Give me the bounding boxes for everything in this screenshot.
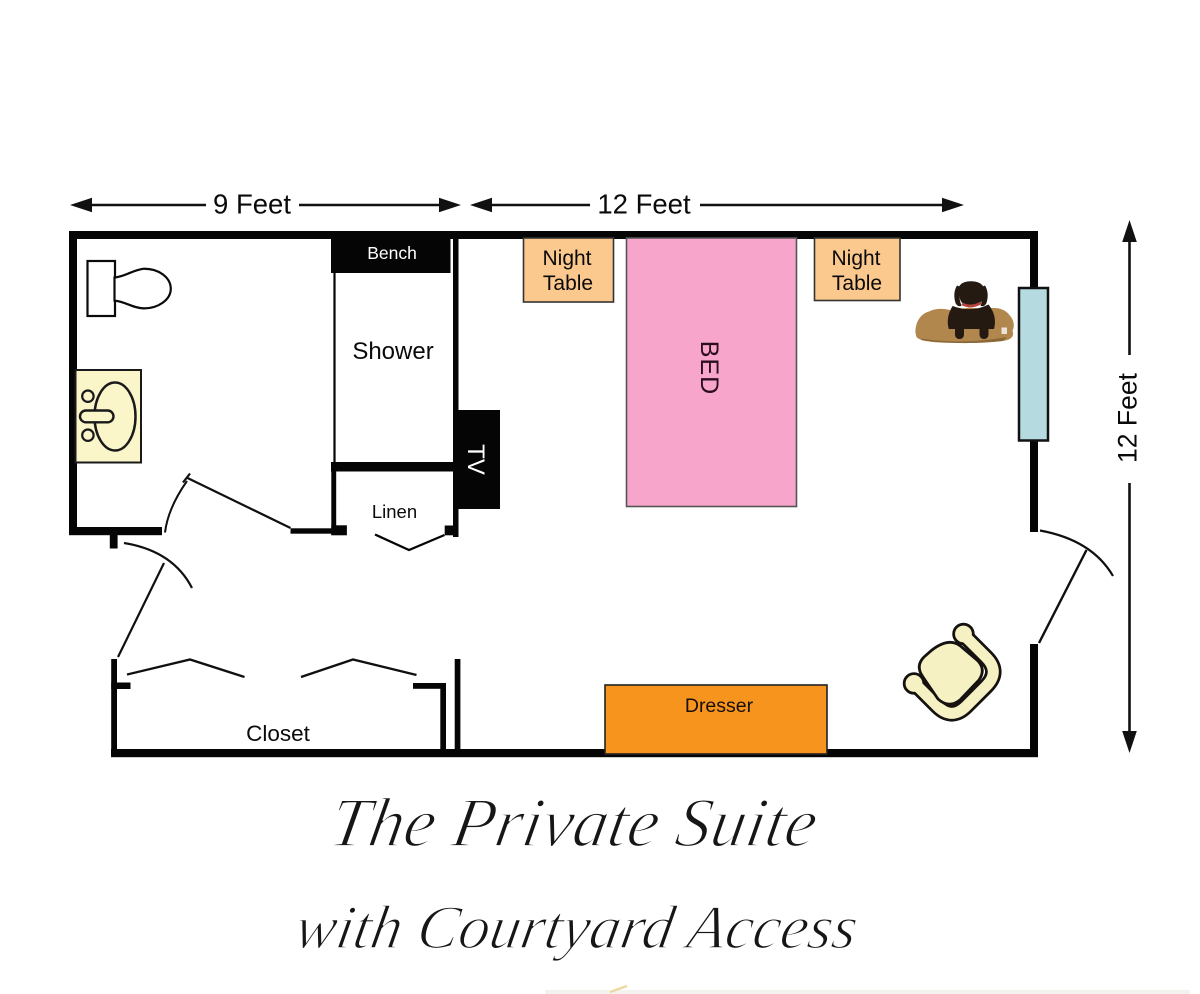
svg-text:Linen: Linen xyxy=(372,501,417,522)
svg-text:9 Feet: 9 Feet xyxy=(213,189,291,220)
svg-text:12 Feet: 12 Feet xyxy=(597,189,691,220)
svg-text:Table: Table xyxy=(543,272,593,295)
svg-text:Dresser: Dresser xyxy=(685,695,754,717)
svg-text:12 Feet: 12 Feet xyxy=(1113,372,1143,463)
svg-text:Shower: Shower xyxy=(352,338,433,365)
svg-text:Table: Table xyxy=(832,272,882,295)
svg-text:BED: BED xyxy=(695,341,723,395)
svg-text:with Courtyard Access: with Courtyard Access xyxy=(290,892,864,961)
svg-text:Bench: Bench xyxy=(367,243,417,263)
svg-text:Night: Night xyxy=(831,247,880,270)
svg-text:The Private Suite: The Private Suite xyxy=(324,784,824,861)
svg-text:Closet: Closet xyxy=(246,721,311,746)
svg-text:Night: Night xyxy=(542,247,591,270)
svg-text:TV: TV xyxy=(462,444,489,475)
